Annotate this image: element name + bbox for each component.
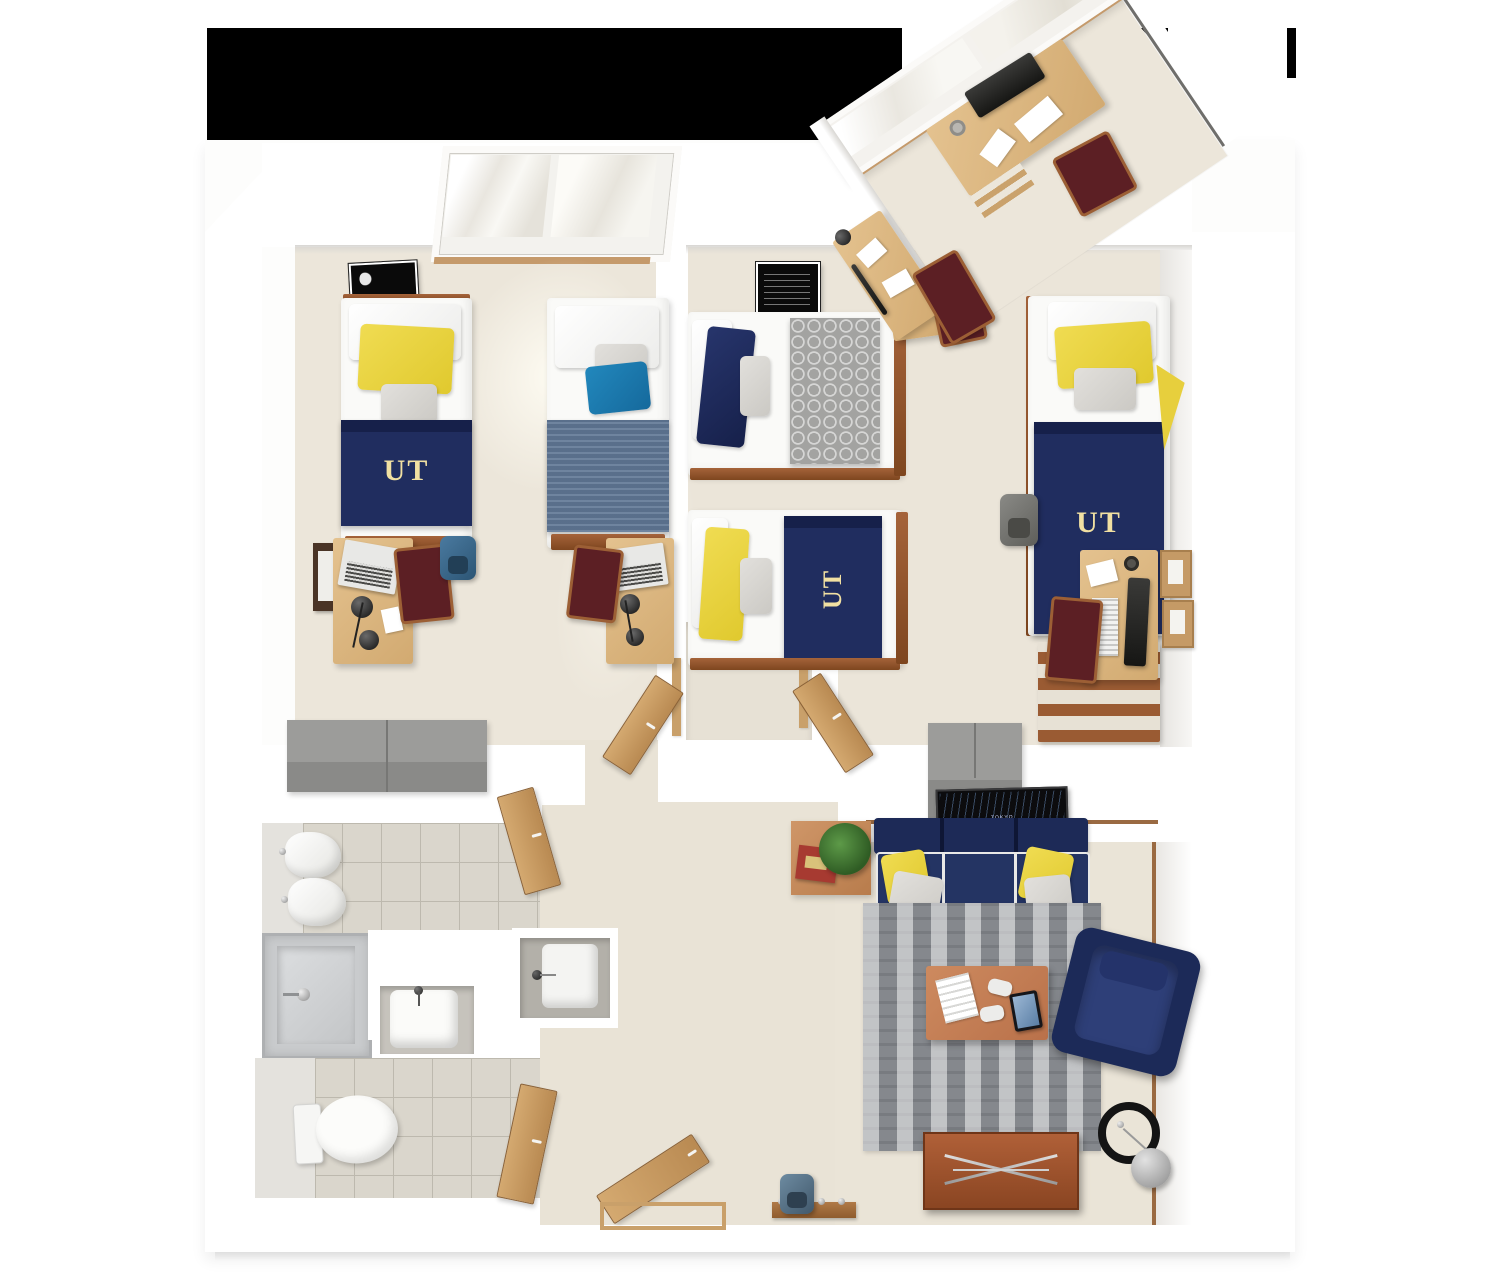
shower [262, 933, 372, 1059]
desk-lamp-base [626, 628, 644, 646]
pen-cup [946, 117, 968, 139]
bed-right: UT [1028, 296, 1170, 748]
coat-hook-icon [838, 1198, 845, 1205]
wall-bath-door-jamb [540, 745, 585, 805]
bedroom-left-window [431, 146, 682, 262]
paper [882, 268, 915, 298]
suite-drop-shadow [215, 1252, 1290, 1261]
wall-toilet-bottom [255, 1198, 540, 1252]
chair-right [1044, 596, 1103, 684]
ut-monogram: UT [341, 454, 472, 488]
bed-pillow-blue [585, 361, 652, 415]
bed-blanket-ut: UT [341, 420, 472, 526]
toilet [292, 1091, 400, 1168]
book [935, 973, 979, 1024]
vanity-sink-alcove [380, 986, 474, 1054]
patent-poster [756, 262, 820, 314]
bed-pillow-gray [740, 558, 772, 614]
monitor [1124, 577, 1151, 666]
entry-backpack [780, 1174, 814, 1214]
towel-hook-b [288, 878, 346, 926]
media-console [923, 1132, 1079, 1210]
bed-pillow-gray [1074, 368, 1136, 410]
coat-hook-icon [818, 1198, 825, 1205]
faucet-spout [540, 974, 556, 976]
bed-pillow-gray [740, 356, 770, 416]
hall-sink-niche [512, 928, 618, 1028]
bed-rail-bottom [690, 468, 900, 480]
paper [1014, 96, 1063, 143]
blue-backpack [440, 536, 476, 580]
backpack-pocket [1008, 518, 1030, 538]
toilet-bowl [314, 1093, 399, 1165]
game-controller [979, 1004, 1005, 1023]
bed-blanket-denim [547, 420, 669, 532]
bed-left-a: UT [341, 298, 472, 550]
dresser-divider [386, 720, 388, 792]
side-table [791, 821, 871, 895]
entry-door-frame [600, 1202, 726, 1230]
sink-basin [390, 990, 458, 1048]
ut-monogram: UT [818, 540, 848, 638]
console-x-leg [953, 1169, 1049, 1171]
towel-hook-icon [281, 896, 288, 903]
bed-footboard [896, 512, 908, 664]
pen-cup [1124, 556, 1139, 571]
bed-left-b [547, 298, 669, 548]
tablet [1009, 990, 1043, 1032]
desk-lamp-shade [620, 594, 640, 614]
bed-middle-a [688, 312, 902, 476]
ut-monogram: UT [1034, 506, 1164, 540]
laptop [337, 539, 402, 594]
sink-basin [542, 944, 598, 1008]
bed-rail-bottom [690, 658, 900, 670]
window-pane-left [443, 155, 552, 237]
jupiter-moon-icon [359, 270, 376, 287]
sofa-back [874, 818, 1088, 854]
towel-hook-a [285, 832, 341, 878]
bed-blanket-ut: UT [784, 516, 882, 662]
desk-lamp-base [359, 630, 379, 650]
bed-middle-b: UT [688, 510, 902, 666]
bathroom-tile-floor [303, 823, 540, 938]
wardrobe-dresser-left [287, 720, 487, 792]
tablet-screen [1012, 993, 1039, 1028]
backpack-pocket [448, 556, 468, 574]
coffee-table [926, 966, 1048, 1040]
bed-pillow-gray [381, 384, 437, 424]
paper [1086, 559, 1118, 587]
quatrefoil-throw [790, 318, 880, 464]
floorplan-canvas: { "title": "UT residence hall suite — 3D… [0, 0, 1500, 1286]
wall-left [205, 232, 262, 1252]
gray-backpack [1000, 494, 1038, 546]
faucet-spout [418, 992, 420, 1006]
patent-sketch [764, 269, 810, 305]
backpack-pocket [787, 1192, 807, 1208]
potted-plant [819, 823, 871, 875]
chair-left-b [566, 544, 625, 624]
shower-arm [283, 993, 299, 996]
paper [856, 238, 887, 269]
cork-board-b [1162, 600, 1194, 648]
arc-floor-lamp-shade [1131, 1148, 1171, 1188]
towel-hook-icon [279, 848, 286, 855]
window-pane-right [551, 155, 658, 237]
wall-right [1192, 232, 1295, 1252]
backdrop-sliver-right [1287, 28, 1296, 78]
lamp-pivot [1117, 1121, 1124, 1128]
cork-board-a [1160, 550, 1192, 598]
dresser-divider [974, 723, 976, 778]
paper [979, 128, 1016, 167]
